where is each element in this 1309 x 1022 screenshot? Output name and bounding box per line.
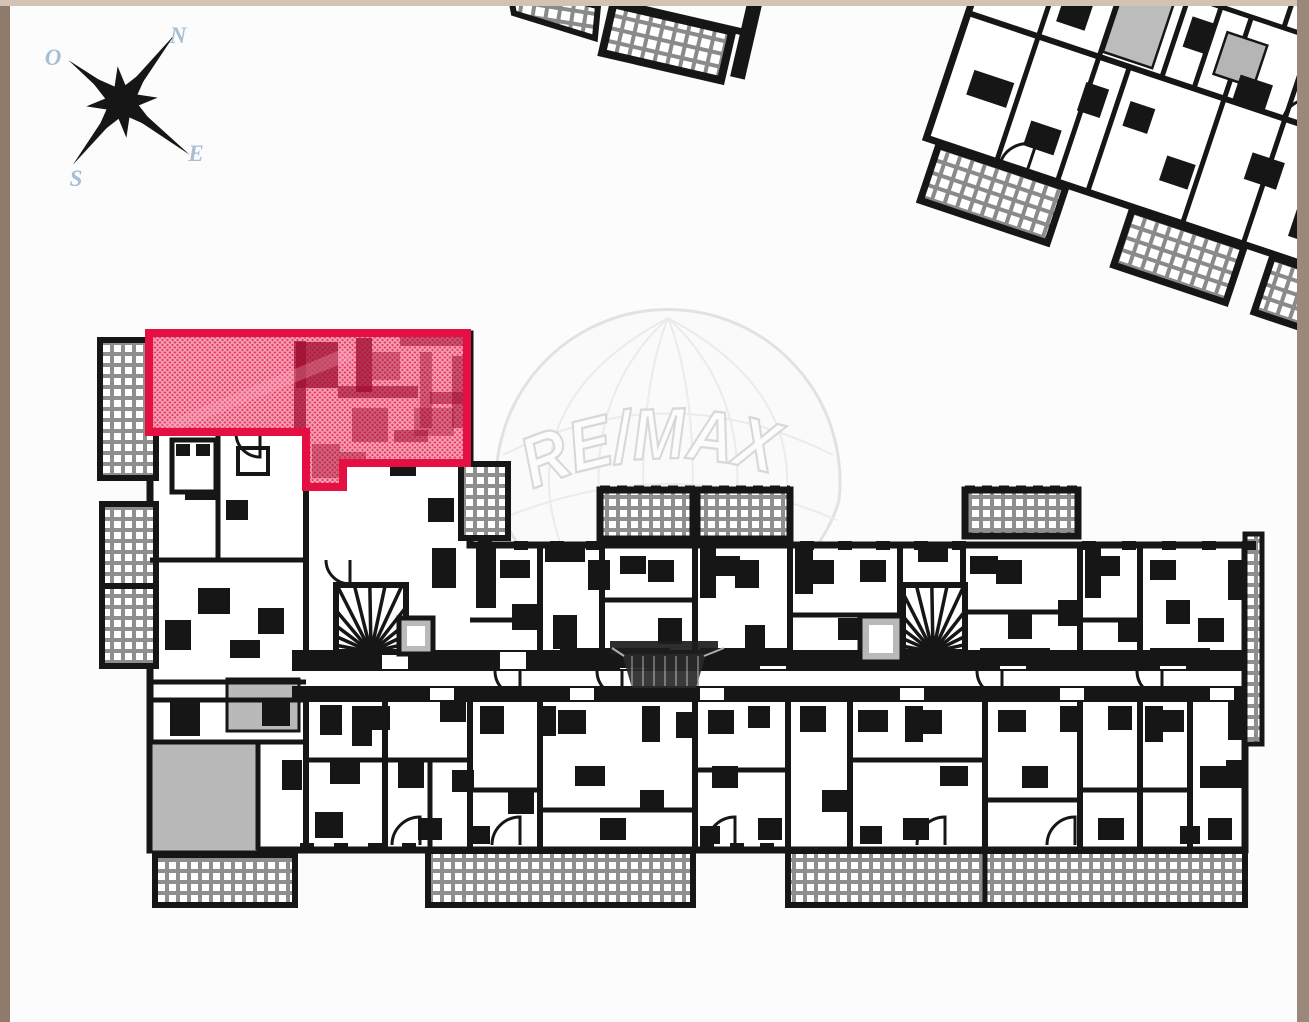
svg-text:O: O [45,45,62,70]
svg-text:N: N [169,23,188,48]
svg-text:E: E [187,141,203,166]
svg-text:S: S [70,166,83,191]
